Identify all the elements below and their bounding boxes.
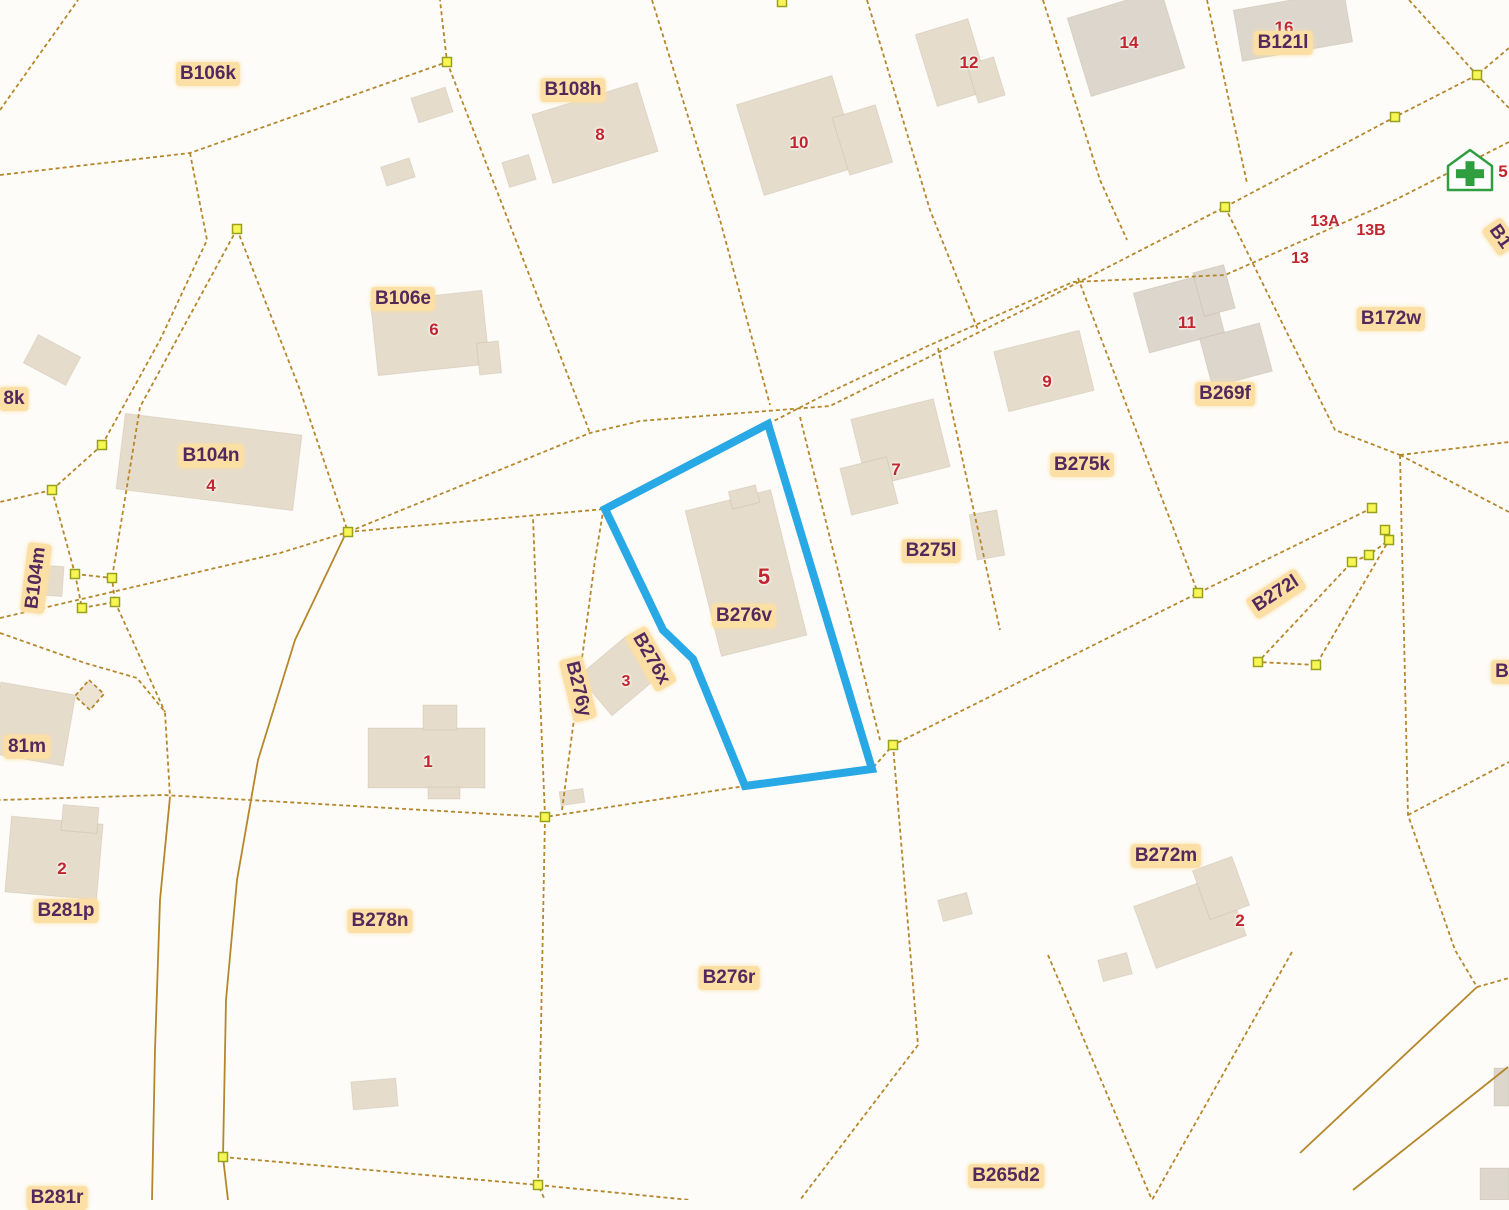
vertex-marker: [98, 441, 107, 450]
vertex-marker: [443, 58, 452, 67]
parcel-label-b265d2[interactable]: B265d2: [968, 1164, 1044, 1188]
parcel-boundary-line: [52, 445, 102, 490]
parcel-boundary-line: [1152, 952, 1292, 1200]
parcel-label-b104n[interactable]: B104n: [178, 444, 243, 468]
building-footprint: [938, 892, 973, 921]
vertex-marker: [534, 1181, 543, 1190]
parcel-boundary-line: [348, 509, 605, 532]
parcel-label-b[interactable]: B: [1491, 660, 1509, 684]
parcel-boundary-line: [52, 490, 75, 574]
parcel-boundary-line: [152, 797, 170, 1200]
vertex-marker: [233, 225, 242, 234]
parcel-label-b121l[interactable]: B121l: [1254, 31, 1313, 55]
vertex-marker: [1194, 589, 1203, 598]
parcel-label-b108h[interactable]: B108h: [540, 78, 605, 102]
building-footprint: [969, 510, 1005, 560]
parcel-boundary-line: [75, 680, 104, 710]
parcel-boundary-line: [0, 0, 447, 175]
vertex-marker: [1365, 551, 1374, 560]
building-footprint: [423, 705, 457, 730]
parcel-boundary-line: [938, 348, 1000, 630]
parcel-label-8k[interactable]: 8k: [0, 387, 29, 411]
vertex-marker: [1368, 504, 1377, 513]
vertex-marker: [71, 570, 80, 579]
parcel-boundary-line: [652, 0, 770, 405]
parcel-boundary-line: [1477, 978, 1509, 987]
building-footprint: [685, 490, 807, 657]
parcel-label-81m[interactable]: 81m: [4, 735, 50, 759]
building-footprint: [967, 57, 1005, 103]
parcel-boundary-line: [115, 602, 165, 712]
parcel-label-b272m[interactable]: B272m: [1131, 844, 1201, 868]
building-footprint: [1494, 1068, 1509, 1106]
building-footprint: [1480, 1168, 1509, 1200]
parcel-label-b106e[interactable]: B106e: [371, 287, 435, 311]
parcel-boundary-line: [223, 535, 345, 1200]
vertex-marker: [344, 528, 353, 537]
vertex-marker: [778, 0, 787, 7]
parcel-label-b275k[interactable]: B275k: [1050, 453, 1114, 477]
parcel-boundary-line: [1408, 762, 1509, 815]
parcel-boundary-line: [0, 508, 1372, 817]
vertex-marker: [1254, 658, 1263, 667]
parcel-label-b276r[interactable]: B276r: [699, 966, 760, 990]
building-footprint: [1067, 0, 1185, 97]
vertex-marker: [78, 604, 87, 613]
parcel-boundary-line: [1048, 955, 1152, 1200]
parcel-boundary-line: [0, 0, 78, 110]
building-footprint: [1098, 952, 1133, 981]
parcel-label-b281r[interactable]: B281r: [27, 1186, 88, 1210]
parcel-boundary-line: [768, 142, 1509, 424]
vertex-marker: [1473, 71, 1482, 80]
vertex-marker: [1391, 113, 1400, 122]
green-cross-house-icon: [1456, 169, 1484, 178]
building-footprint: [428, 787, 460, 799]
cadastral-map-viewport[interactable]: { "map": { "title": "Cadastral parcel ma…: [0, 0, 1509, 1200]
parcel-label-b276v[interactable]: B276v: [712, 604, 776, 628]
parcel-label-b278n[interactable]: B278n: [347, 909, 412, 933]
parcel-boundary-line: [102, 153, 207, 445]
parcel-label-b172w[interactable]: B172w: [1357, 307, 1425, 331]
parcel-boundary-line: [112, 229, 237, 578]
vertex-marker: [48, 486, 57, 495]
parcel-boundary-line: [223, 1157, 538, 1185]
building-footprint: [994, 330, 1094, 411]
parcel-label-b281p[interactable]: B281p: [33, 899, 98, 923]
parcel-label-b269f[interactable]: B269f: [1195, 382, 1255, 406]
building-footprint: [23, 335, 80, 386]
vertex-marker: [1385, 536, 1394, 545]
vertex-marker: [1312, 661, 1321, 670]
vertex-marker: [1348, 558, 1357, 567]
building-footprint: [502, 154, 536, 187]
building-footprint: [381, 158, 416, 186]
parcel-boundary-line: [1400, 455, 1509, 512]
parcel-label-b275l[interactable]: B275l: [902, 539, 961, 563]
parcel-boundary-line: [538, 1185, 690, 1200]
vertex-marker: [219, 1153, 228, 1162]
parcel-boundary-line: [0, 490, 52, 502]
building-footprint: [476, 341, 501, 375]
parcel-boundary-line: [1400, 455, 1477, 987]
vertex-marker: [889, 741, 898, 750]
building-footprint: [411, 87, 453, 123]
parcel-boundary-line: [800, 745, 918, 1200]
parcel-boundary-line: [533, 518, 545, 817]
vertex-marker: [1381, 526, 1390, 535]
parcel-label-b106k[interactable]: B106k: [176, 62, 240, 86]
vertex-marker: [541, 813, 550, 822]
vertex-marker: [111, 598, 120, 607]
parcel-boundary-line: [538, 817, 545, 1200]
vertex-marker: [1221, 203, 1230, 212]
building-footprint: [351, 1078, 398, 1110]
parcel-boundary-line: [1400, 442, 1509, 455]
parcel-boundary-line: [1300, 987, 1477, 1153]
vertex-marker: [108, 574, 117, 583]
building-footprint: [368, 728, 485, 788]
building-footprint: [61, 804, 99, 833]
parcel-boundary-line: [1409, 0, 1477, 75]
